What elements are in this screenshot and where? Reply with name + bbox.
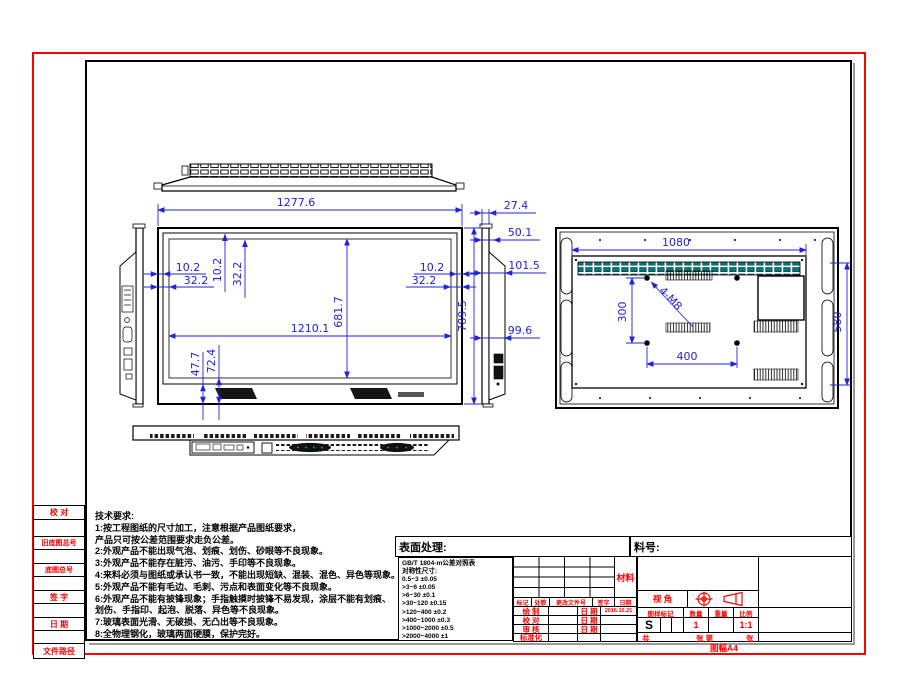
approval-role-standardization: 标准化 bbox=[513, 633, 549, 642]
vent-grille bbox=[666, 271, 712, 280]
sheet-size-label: 图幅A4 bbox=[710, 642, 738, 654]
notes-line: 3:外观产品不能存在脏污、油污、手印等不良现象。 bbox=[95, 558, 400, 570]
tolerance-row: >2000~4000 ±1 bbox=[402, 633, 512, 641]
vent-grille bbox=[666, 323, 710, 332]
approval-blank bbox=[577, 633, 601, 642]
dim-side-depth-2: 50.1 bbox=[508, 226, 533, 239]
dim-mount-holes: 4-M8 bbox=[656, 284, 684, 313]
vesa-mount-holes bbox=[644, 275, 740, 346]
dim-left-edge-1: 10.2 bbox=[176, 261, 201, 274]
tolerance-header: GB/T 1804-m公差对照表 bbox=[402, 560, 512, 568]
sidebar-item-old-drawing-no: 旧底图总号 bbox=[33, 536, 85, 550]
tolerance-row: >400~1000 ±0.3 bbox=[402, 617, 512, 625]
technical-notes: 技术要求: 1:按工程图纸的尺寸加工，注意根据产品图纸要求， 产品只可按公差范围… bbox=[95, 511, 400, 641]
tolerance-row: 0.5~3 ±0.05 bbox=[402, 576, 512, 584]
dimension-labels: 1277.6 789.5 1210.1 681.7 10.2 32.2 10.2… bbox=[176, 196, 844, 376]
notes-line: 2:外观产品不能出现气泡、划痕、划伤、砂眼等不良现象。 bbox=[95, 546, 400, 558]
notes-line: 5:外观产品不能有毛边、毛刺、污点和表面变化等不良现象。 bbox=[95, 582, 400, 594]
dim-front-inner-width: 1210.1 bbox=[291, 322, 330, 335]
sidebar-item-date: 日 期 bbox=[33, 617, 85, 631]
electronics-box bbox=[758, 276, 804, 320]
dim-side-depth-3: 101.5 bbox=[508, 259, 540, 272]
dim-vesa-vertical: 300 bbox=[616, 302, 629, 323]
approval-blank bbox=[600, 633, 637, 642]
dim-top-edge-2: 32.2 bbox=[231, 262, 244, 287]
dim-front-inner-height: 681.7 bbox=[332, 296, 345, 328]
title-right-bottom-box bbox=[758, 632, 852, 642]
company-box bbox=[637, 556, 759, 591]
bottom-view bbox=[133, 426, 459, 455]
first-angle-projection-icon bbox=[692, 591, 754, 607]
notes-line: 4:来料必须与图纸或承认书一致，不能出现短缺、混装、混色、异色等现象。 bbox=[95, 570, 400, 582]
surface-treatment-label: 表面处理: bbox=[395, 536, 630, 557]
spec-value-scale: 1:1 bbox=[733, 617, 759, 633]
part-number-label: 料号: bbox=[630, 536, 852, 557]
spec-value-mark: S bbox=[637, 617, 661, 633]
dim-side-depth-4: 99.6 bbox=[508, 324, 533, 337]
notes-line: 8:全物理钢化，玻璃两面硬膜，保护完好。 bbox=[95, 629, 400, 641]
sidebar-blank bbox=[33, 630, 85, 644]
tolerance-row: >30~120 ±0.15 bbox=[402, 600, 512, 608]
side-view bbox=[480, 224, 505, 407]
revision-grid bbox=[513, 556, 615, 598]
sheet-count-row: 共 张 第 张 bbox=[637, 632, 759, 642]
vent-grille bbox=[754, 321, 798, 332]
title-right-top-box bbox=[758, 556, 852, 608]
sidebar-item-file-path: 文件路径 bbox=[33, 643, 85, 659]
sidebar-item-check: 校 对 bbox=[33, 505, 85, 520]
dim-right-edge-2: 32.2 bbox=[412, 274, 437, 287]
left-side-view bbox=[120, 224, 145, 407]
material-label: 材料 bbox=[614, 556, 637, 598]
front-logo bbox=[398, 392, 424, 397]
vent-grille bbox=[754, 369, 798, 380]
notes-line: 产品只可按公差范围要求走负公差。 bbox=[95, 535, 400, 547]
dim-bottom-edge-2: 72.4 bbox=[205, 349, 218, 374]
projection-cell bbox=[687, 590, 759, 608]
dim-front-width: 1277.6 bbox=[277, 196, 316, 209]
dim-front-height: 789.5 bbox=[456, 300, 469, 332]
drawing-sheet: 1277.6 789.5 1210.1 681.7 10.2 32.2 10.2… bbox=[0, 0, 897, 673]
dim-top-edge-1: 10.2 bbox=[211, 258, 224, 283]
tolerance-table: GB/T 1804-m公差对照表 对称性尺寸: 0.5~3 ±0.05 >3~6… bbox=[398, 557, 513, 641]
bottom-connector-panel bbox=[192, 442, 272, 453]
tolerance-row: >120~400 ±0.2 bbox=[402, 609, 512, 617]
front-view bbox=[158, 228, 462, 404]
sidebar-blank bbox=[33, 549, 85, 564]
notes-title: 技术要求: bbox=[95, 511, 400, 523]
projection-label: 视 角 bbox=[637, 590, 688, 608]
dim-left-edge-2: 32.2 bbox=[184, 274, 209, 287]
spec-value-qty: 1 bbox=[683, 617, 709, 633]
dim-bottom-edge-1: 47.7 bbox=[189, 352, 202, 377]
tolerance-row: >6~30 ±0.1 bbox=[402, 592, 512, 600]
sidebar-blank bbox=[33, 603, 85, 618]
sidebar-blank bbox=[33, 519, 85, 537]
title-right-mid-box bbox=[758, 607, 852, 633]
notes-line: 1:按工程图纸的尺寸加工，注意根据产品图纸要求， bbox=[95, 523, 400, 535]
notes-line: 7:玻璃表面光滑、无破损、无凸出等不良现象。 bbox=[95, 617, 400, 629]
tolerance-row: >1000~2000 ±0.5 bbox=[402, 625, 512, 633]
tolerance-row: >3~6 ±0.05 bbox=[402, 584, 512, 592]
dim-back-height: 580 bbox=[831, 312, 844, 333]
top-view bbox=[154, 164, 464, 191]
spec-value-weight bbox=[708, 617, 734, 633]
sidebar-blank bbox=[33, 576, 85, 591]
approval-blank bbox=[548, 633, 578, 642]
notes-line: 6:外观产品不能有披锋现象；手指触摸时披锋不易发现，涂层不能有划痕、 bbox=[95, 594, 400, 606]
sheet-page-label: 张 bbox=[746, 633, 754, 644]
sidebar-item-signature: 签 字 bbox=[33, 590, 85, 604]
dim-right-edge-1: 10.2 bbox=[420, 261, 445, 274]
notes-line: 划伤、手指印、起泡、脱落、异色等不良现象。 bbox=[95, 605, 400, 617]
tolerance-subheader: 对称性尺寸: bbox=[402, 568, 512, 576]
dim-side-depth-1: 27.4 bbox=[504, 199, 529, 212]
sidebar-item-drawing-no: 底图总号 bbox=[33, 563, 85, 577]
dim-back-width: 1080 bbox=[662, 236, 690, 249]
sheet-total-label: 共 bbox=[642, 633, 650, 644]
dim-vesa-horizontal: 400 bbox=[677, 350, 698, 363]
back-view bbox=[556, 228, 838, 408]
